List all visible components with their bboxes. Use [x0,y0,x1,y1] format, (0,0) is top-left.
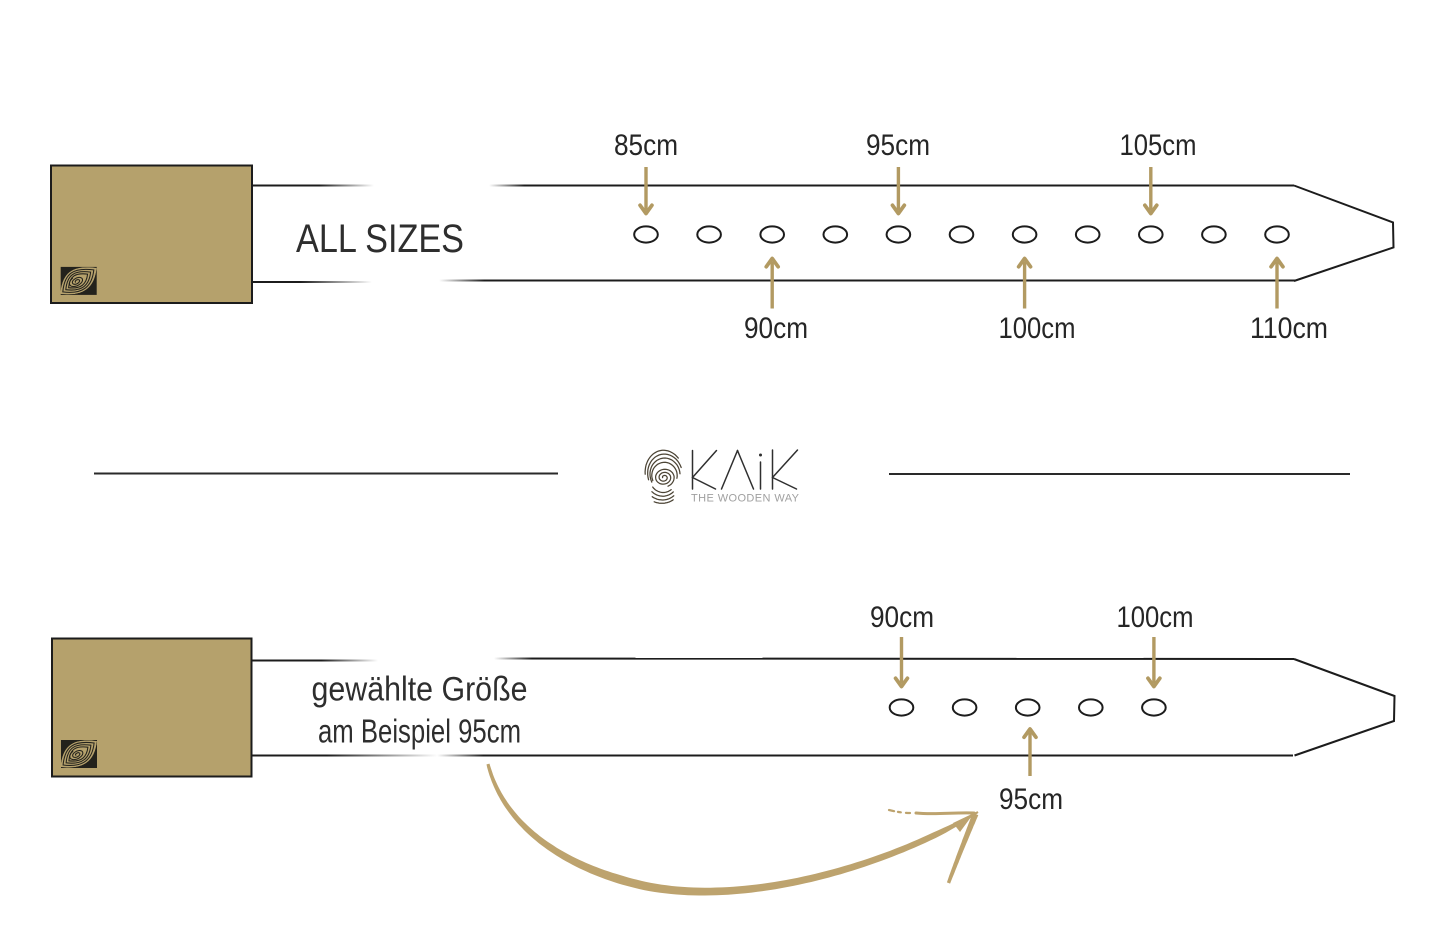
svg-text:95cm: 95cm [999,783,1063,816]
svg-text:THE WOODEN WAY: THE WOODEN WAY [691,493,800,505]
svg-text:90cm: 90cm [744,312,808,345]
svg-text:ALL SIZES: ALL SIZES [296,217,464,261]
svg-text:am Beispiel 95cm: am Beispiel 95cm [318,713,521,750]
svg-text:105cm: 105cm [1120,129,1197,162]
svg-text:95cm: 95cm [866,129,930,162]
svg-text:90cm: 90cm [870,601,934,634]
svg-text:100cm: 100cm [999,312,1076,345]
svg-text:85cm: 85cm [614,129,678,162]
svg-text:100cm: 100cm [1117,601,1194,634]
svg-text:110cm: 110cm [1250,312,1328,345]
svg-text:gewählte Größe: gewählte Größe [312,671,528,709]
